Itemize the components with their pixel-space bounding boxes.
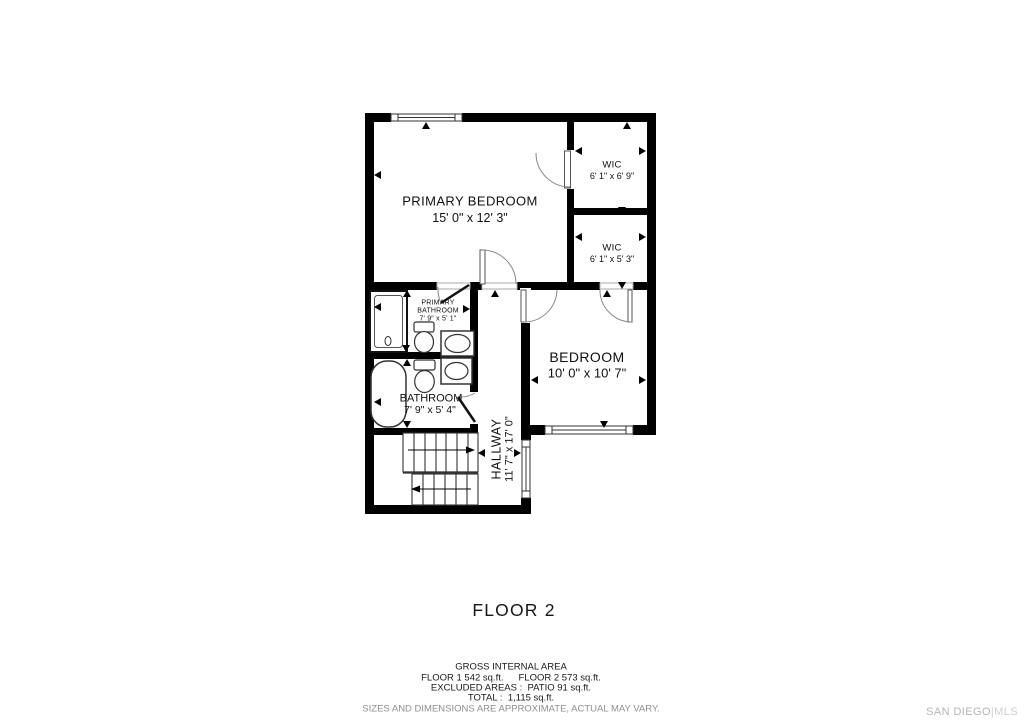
room-label-bedroom: BEDROOM — [549, 349, 624, 365]
shower-icon — [370, 291, 407, 352]
mls-watermark-name: SAN DIEGO — [926, 706, 991, 718]
dim-tick — [374, 171, 381, 179]
dim-tick — [639, 233, 646, 241]
toilet-icon — [414, 360, 435, 393]
summary-disclaimer: SIZES AND DIMENSIONS ARE APPROXIMATE, AC… — [362, 705, 659, 716]
floor-plan-page: PRIMARY BEDROOM 15' 0" x 12' 3" WIC 6' 1… — [0, 0, 1024, 724]
dim-tick — [478, 449, 485, 457]
room-label-wic-bottom: WIC — [602, 244, 621, 255]
dim-tick — [603, 290, 611, 297]
dim-tick — [639, 376, 646, 384]
room-dims-primary-bedroom: 15' 0" x 12' 3" — [432, 211, 508, 225]
room-dims-primary-bathroom: 7' 9" x 5' 1" — [417, 315, 459, 323]
window-bedroom-icon — [545, 426, 633, 434]
window-hallway-icon — [522, 440, 530, 498]
mls-watermark-suffix: MLS — [994, 706, 1018, 718]
room-dims-bathroom: 7' 9" x 5' 4" — [404, 404, 456, 416]
sink-primary-icon — [441, 331, 474, 356]
door-wic-bottom — [600, 283, 633, 322]
room-dims-bedroom: 10' 0" x 10' 7" — [548, 367, 627, 382]
toilet-primary-icon — [414, 322, 434, 353]
dim-tick — [463, 305, 470, 313]
window-top-icon — [391, 114, 462, 121]
door-bedroom — [520, 288, 557, 323]
dim-tick — [531, 376, 538, 384]
room-label-primary-bedroom: PRIMARY BEDROOM — [402, 195, 538, 210]
hallway-name: HALLWAY — [489, 416, 503, 482]
dim-tick — [491, 290, 499, 297]
dim-tick — [575, 147, 582, 155]
room-label-wic-top: WIC — [602, 161, 621, 172]
sink-icon — [441, 358, 472, 384]
door-primary-bedroom — [480, 250, 517, 289]
mls-watermark: SAN DIEGO|MLS — [926, 706, 1018, 718]
dim-tick — [422, 122, 430, 129]
dim-tick — [623, 122, 631, 129]
primary-bathroom-name-line2: BATHROOM — [417, 307, 459, 315]
door-wic-top — [536, 150, 575, 189]
room-label-primary-bathroom: PRIMARY BATHROOM 7' 9" x 5' 1" — [417, 299, 459, 322]
primary-bathroom-name-line1: PRIMARY — [417, 299, 459, 307]
dim-tick — [403, 421, 411, 428]
floor-title: FLOOR 2 — [472, 600, 555, 620]
room-dims-wic-bottom: 6' 1" x 5' 3" — [590, 254, 634, 264]
dim-tick — [639, 147, 646, 155]
staircase — [403, 433, 478, 505]
room-label-hallway: HALLWAY 11' 7" x 17' 0" — [489, 416, 516, 482]
room-dims-hallway: 11' 7" x 17' 0" — [504, 416, 517, 482]
dim-tick — [575, 233, 582, 241]
room-dims-wic-top: 6' 1" x 6' 9" — [590, 171, 634, 181]
dim-tick — [403, 359, 411, 366]
